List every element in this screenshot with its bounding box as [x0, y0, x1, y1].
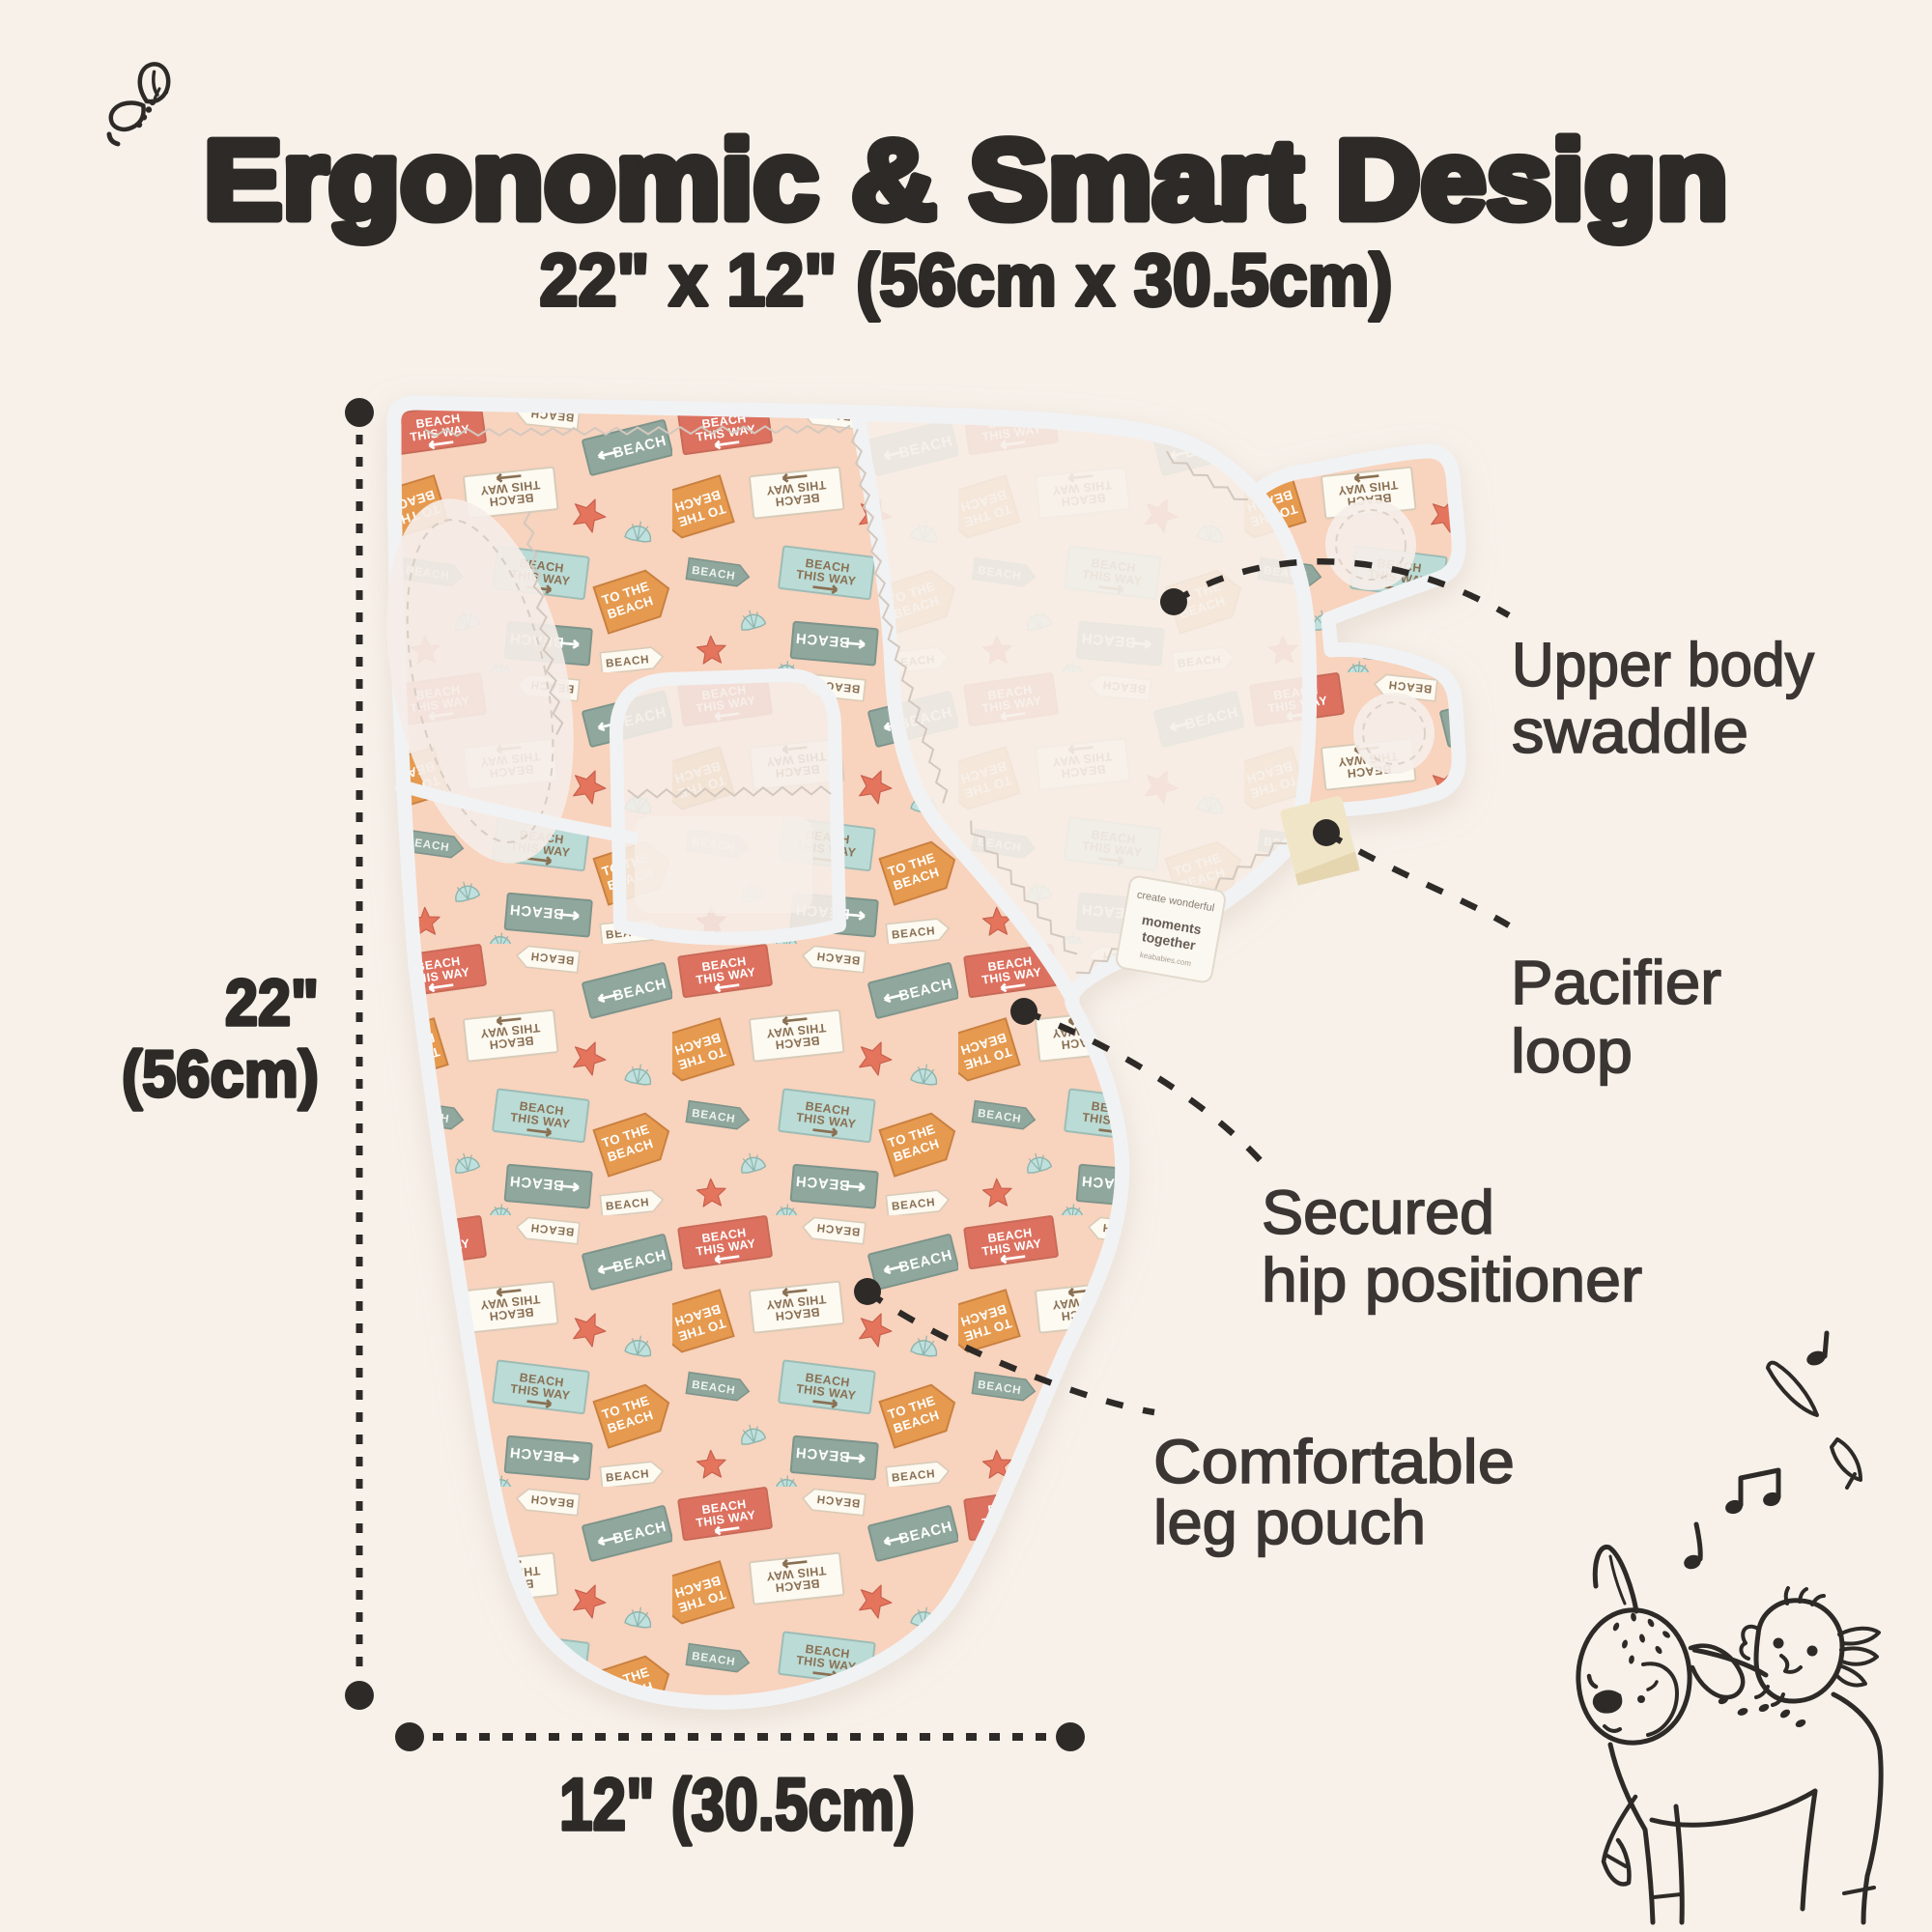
- svg-text:22": 22": [225, 966, 319, 1039]
- svg-text:22" x 12" (56cm x 30.5cm): 22" x 12" (56cm x 30.5cm): [540, 240, 1393, 322]
- svg-text:loop: loop: [1511, 1016, 1633, 1086]
- svg-text:hip positioner: hip positioner: [1262, 1245, 1642, 1315]
- svg-text:Upper body: Upper body: [1512, 630, 1814, 699]
- svg-text:leg pouch: leg pouch: [1153, 1488, 1426, 1557]
- svg-text:Ergonomic & Smart Design: Ergonomic & Smart Design: [204, 117, 1728, 242]
- svg-text:Pacifier: Pacifier: [1511, 948, 1721, 1017]
- svg-text:Comfortable: Comfortable: [1153, 1427, 1515, 1496]
- svg-text:12" (30.5cm): 12" (30.5cm): [559, 1764, 915, 1846]
- svg-text:(56cm): (56cm): [122, 1037, 319, 1111]
- svg-text:Secured: Secured: [1262, 1178, 1494, 1247]
- svg-text:swaddle: swaddle: [1512, 696, 1748, 766]
